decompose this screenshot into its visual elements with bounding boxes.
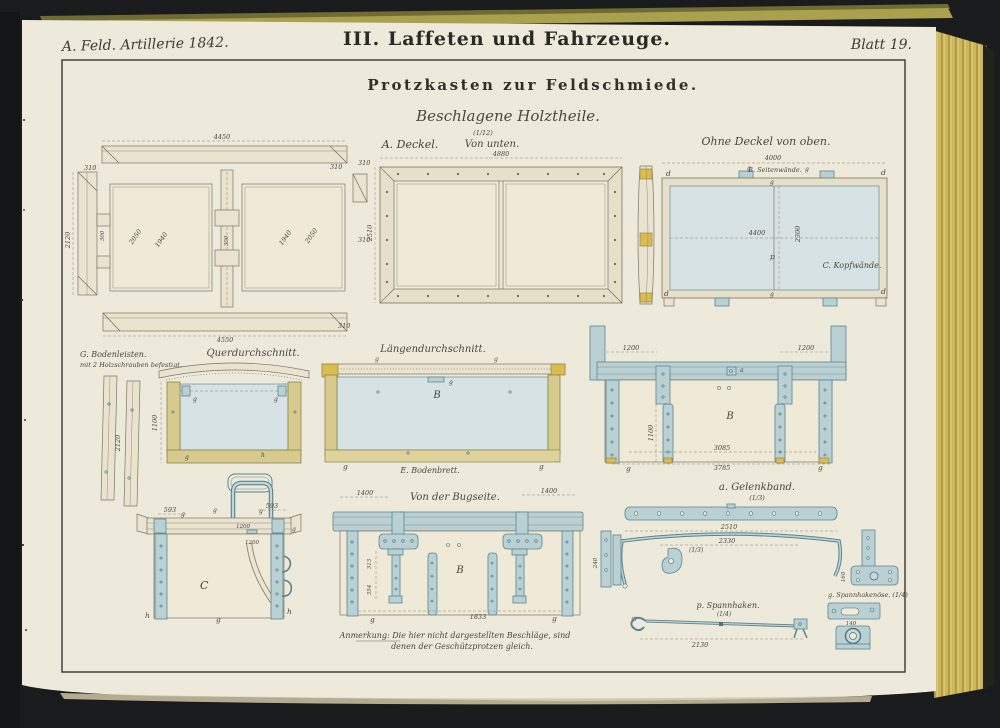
chapter-title: III. Laffeten und Fahrzeuge. — [343, 28, 671, 50]
plate-scan: A. Feld. Artillerie 1842. III. Laffeten … — [0, 0, 1000, 728]
part-label-spannhakenoese: g. Spannhakenöse. (1/4) — [828, 591, 908, 599]
dim-label: 313 — [367, 558, 373, 569]
reference-letter: g — [770, 179, 774, 186]
reference-letter: h — [287, 607, 292, 616]
dim-label: 4000 — [764, 154, 782, 162]
reference-letter: g — [770, 291, 774, 298]
reference-letter: g — [213, 507, 217, 514]
figure-title: p. Spannhaken. — [696, 601, 759, 610]
figure-scale: (1/3) — [749, 494, 765, 502]
right-page-stack-edge — [932, 30, 987, 698]
reference-letter: B — [455, 565, 463, 576]
reference-letter: g — [343, 462, 348, 471]
dim-label: 2120 — [64, 232, 72, 250]
reference-letter: a — [740, 367, 744, 374]
figure-part-label: A. Deckel. — [381, 138, 439, 151]
dim-label: 1400 — [541, 487, 558, 495]
note-line-1: Anmerkung: Die hier nicht dargestellten … — [339, 631, 571, 640]
dim-label: 354 — [367, 584, 373, 595]
dim-label: 593 — [266, 502, 278, 510]
dim-label: 310 — [330, 163, 342, 171]
dim-label: 2330 — [718, 537, 736, 545]
plate-title: Protzkasten zur Feldschmiede. — [367, 76, 698, 94]
figure-note: mit 2 Holzschrauben befestigt. — [80, 361, 182, 369]
dim-label: 1100 — [151, 415, 159, 432]
reference-letter: d — [881, 168, 886, 177]
left-spine — [0, 12, 20, 728]
plate-scale: (1/12) — [473, 129, 493, 137]
reference-letter: g — [375, 356, 379, 363]
figure-title: Von der Bugseite. — [410, 492, 500, 503]
reference-letter: g — [185, 454, 189, 461]
dim-label: 4550 — [216, 336, 234, 344]
reference-letter: g — [626, 464, 631, 473]
dim-label: 1400 — [357, 489, 374, 497]
part-label-kopfwaende: C. Kopfwände. — [823, 261, 882, 270]
dim-label: 2130 — [691, 641, 709, 649]
reference-letter: g — [370, 615, 375, 624]
part-label-bodenbrett: E. Bodenbrett. — [399, 466, 459, 475]
reference-letter: d — [664, 289, 669, 298]
dim-label: 4450 — [213, 133, 231, 141]
dim-label: 300 — [100, 230, 106, 241]
dim-label: 160 — [841, 571, 847, 582]
reference-letter: g — [747, 165, 751, 172]
reference-letter: g — [259, 508, 263, 515]
reference-letter: g — [552, 614, 557, 623]
reference-letter: C — [200, 579, 209, 592]
dim-label: 3085 — [714, 444, 731, 452]
figure-title: a. Gelenkband. — [719, 482, 795, 493]
reference-letter: B — [725, 411, 733, 422]
reference-letter: g — [494, 356, 498, 363]
part-label-seitenwaende: B. Seitenwände. — [747, 166, 802, 174]
dim-label: 1100 — [647, 425, 655, 442]
reference-letter: h — [145, 611, 150, 620]
note-line-2: denen der Geschützprotzen gleich. — [391, 642, 533, 651]
figure-title: Ohne Deckel von oben. — [701, 135, 830, 148]
reference-letter: B — [432, 390, 440, 401]
reference-letter: d — [881, 287, 886, 296]
reference-letter: h — [261, 452, 265, 459]
figure-scale: (1/4) — [717, 611, 732, 618]
dim-label: 593 — [164, 506, 176, 514]
dim-label: 4880 — [492, 150, 510, 158]
dim-label: 240 — [593, 557, 599, 569]
dim-label: 310 — [84, 164, 96, 172]
reference-letter: g — [805, 166, 809, 173]
dim-label: 2510 — [720, 523, 738, 531]
reference-letter: g — [216, 615, 221, 624]
dim-label: 4400 — [748, 229, 766, 237]
reference-letter: d — [666, 169, 671, 178]
dim-label: 1200 — [245, 540, 259, 546]
dim-label: 1200 — [236, 524, 250, 530]
dim-label: 300 — [224, 235, 230, 246]
photographed-book-page: A. Feld. Artillerie 1842. III. Laffeten … — [0, 0, 1000, 728]
right-cover-edge — [983, 44, 994, 690]
dim-label: 1200 — [623, 344, 640, 352]
reference-letter: g — [818, 463, 823, 472]
dim-label: 2300 — [794, 226, 802, 244]
dim-label: 310 — [338, 322, 350, 330]
plate-subtitle: Beschlagene Holztheile. — [415, 107, 600, 125]
reference-letter: g — [181, 511, 185, 518]
figure-title: Querdurchschnitt. — [206, 348, 299, 359]
dim-label: 1833 — [470, 613, 487, 621]
dim-label: 310 — [358, 159, 370, 167]
reference-letter: g — [449, 379, 453, 386]
figure-scale: (1/3) — [689, 547, 704, 554]
figure-view-label: Von unten. — [465, 139, 519, 150]
figure-label: G. Bodenleisten. — [80, 350, 147, 359]
reference-letter: g — [539, 462, 544, 471]
dim-label: 2120 — [114, 435, 122, 453]
dim-label: 3785 — [714, 464, 731, 472]
reference-letter: g — [274, 396, 278, 403]
reference-letter: p — [770, 252, 775, 261]
reference-letter: g — [292, 526, 296, 533]
sheet-number: Blatt 19. — [850, 37, 912, 53]
figure-title: Längendurchschnitt. — [379, 344, 486, 355]
dim-label: 310 — [358, 236, 370, 244]
reference-letter: g — [193, 396, 197, 403]
dim-label: 1200 — [798, 344, 815, 352]
